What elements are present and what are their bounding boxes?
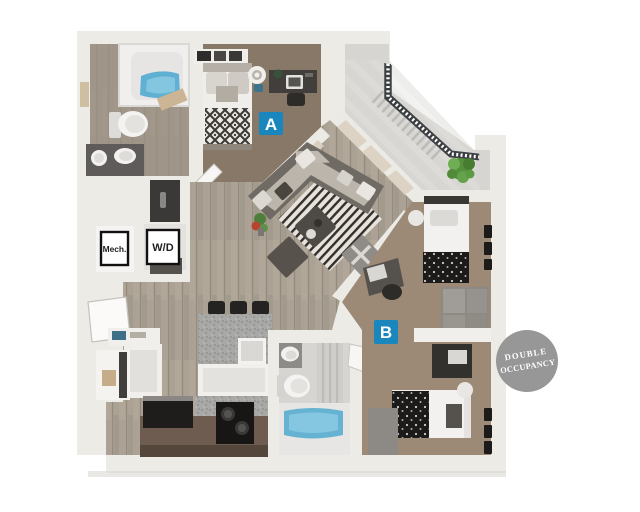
svg-text:B: B (380, 323, 392, 342)
svg-text:W/D: W/D (152, 242, 173, 254)
svg-text:A: A (265, 115, 277, 134)
svg-text:Mech.: Mech. (103, 244, 127, 254)
